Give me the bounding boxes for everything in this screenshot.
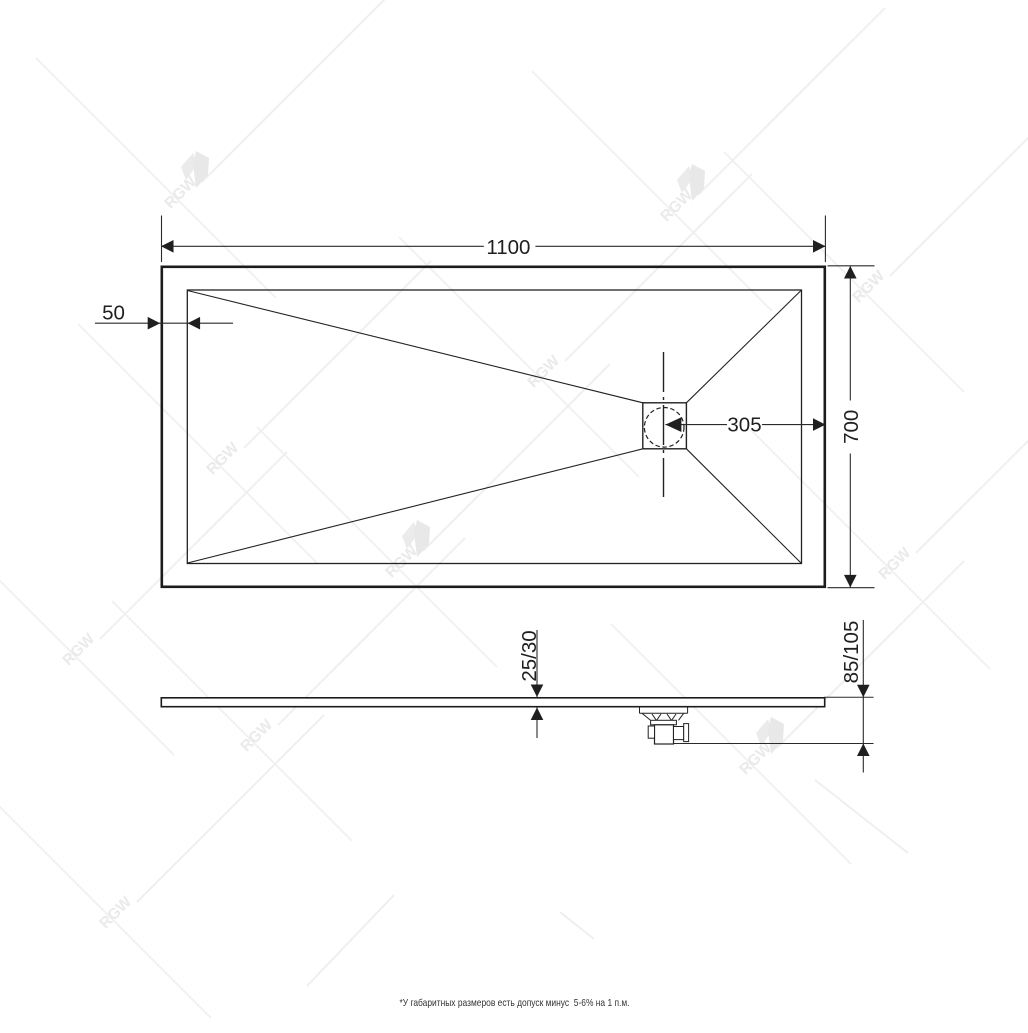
svg-text:*У габаритных размеров есть до: *У габаритных размеров есть допуск минус… <box>400 997 630 1009</box>
svg-text:RGW: RGW <box>657 186 696 225</box>
svg-text:RGW: RGW <box>203 439 242 478</box>
svg-text:RGW: RGW <box>849 267 888 306</box>
svg-text:25/30: 25/30 <box>518 630 541 681</box>
svg-text:700: 700 <box>840 410 863 444</box>
svg-text:RGW: RGW <box>736 739 775 778</box>
svg-text:RGW: RGW <box>524 352 563 391</box>
svg-text:RGW: RGW <box>161 173 200 212</box>
svg-text:305: 305 <box>727 414 761 437</box>
svg-text:RGW: RGW <box>382 542 421 581</box>
svg-text:85/105: 85/105 <box>840 621 863 684</box>
svg-text:50: 50 <box>102 302 125 325</box>
svg-text:RGW: RGW <box>875 544 914 583</box>
svg-text:1100: 1100 <box>486 236 530 259</box>
svg-text:RGW: RGW <box>237 716 276 755</box>
svg-text:RGW: RGW <box>59 630 98 669</box>
svg-text:RGW: RGW <box>96 893 135 932</box>
